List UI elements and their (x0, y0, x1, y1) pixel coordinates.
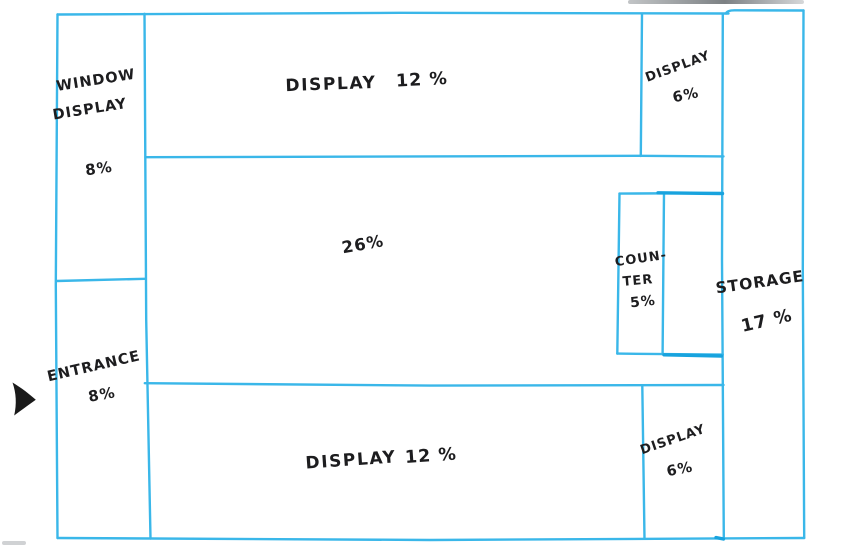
room-counter-share: 5% (629, 294, 656, 311)
room-window-display-share: 8% (84, 160, 113, 179)
counter-divider (663, 193, 664, 355)
wall-bottom-strip-top (145, 383, 724, 385)
bottom-right-corner-overdraw (716, 538, 724, 539)
wall-outer-bottom (58, 538, 805, 540)
room-display-top-share: 12 % (396, 71, 449, 91)
room-display-bottom-share: 12 % (404, 446, 457, 467)
wall-display-bottom-right-left-edge (642, 386, 644, 539)
wall-storage-left (722, 14, 724, 539)
counter-bottom-overdraw (664, 355, 722, 356)
room-counter-name-line2: TER (622, 273, 654, 289)
counter-top-overdraw (658, 193, 723, 194)
scan-artifact-top (628, 0, 804, 4)
hand-drawn-floor-plan: WINDOW DISPLAY 8% ENTRANCE 8% DISPLAY 12… (0, 0, 846, 551)
wall-storage-top (726, 10, 804, 13)
wall-top-strip-bottom (146, 156, 724, 157)
counter-left-edge (617, 194, 619, 354)
wall-display-top-right-left-edge (641, 14, 642, 156)
wall-left-column (145, 14, 151, 539)
room-display-top-name: DISPLAY (285, 75, 377, 95)
wall-outer-top (58, 13, 729, 15)
entrance-arrow-icon (13, 383, 36, 416)
wall-window-entrance-divider (57, 279, 145, 281)
scan-artifact-bottom-left (2, 541, 26, 545)
